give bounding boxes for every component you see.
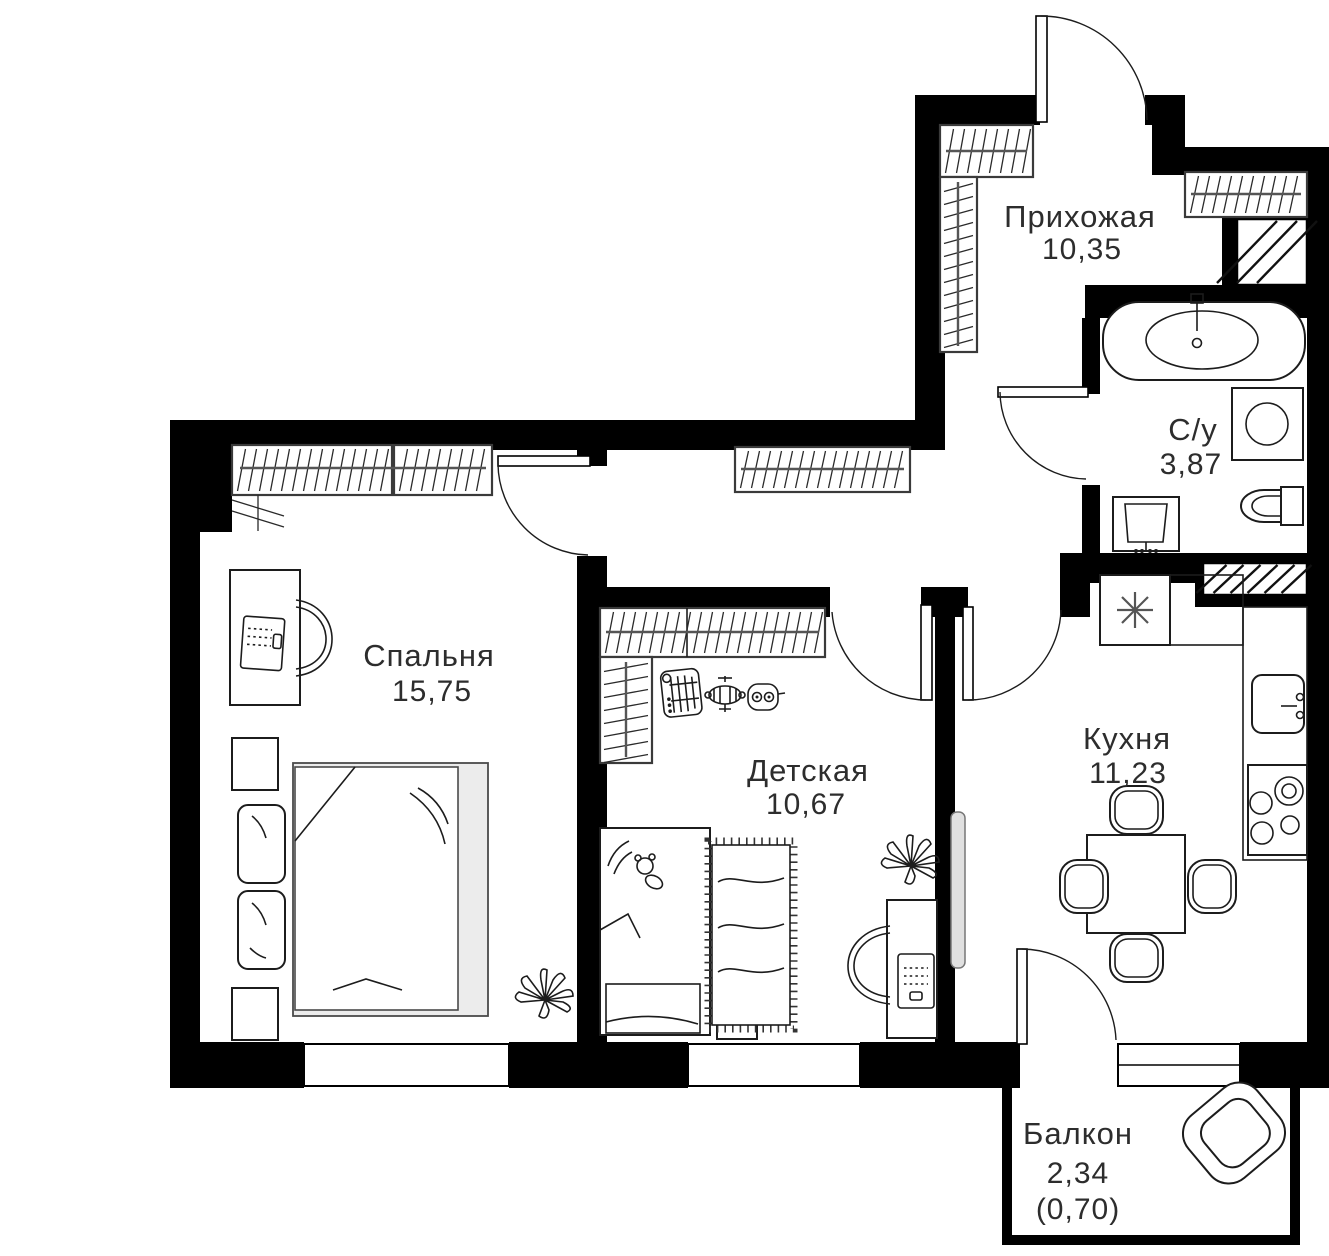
room-kids: Детская 10,67 — [600, 608, 939, 1039]
desk-icon — [887, 900, 937, 1038]
balcony-wall-right — [1290, 1088, 1300, 1245]
balcony-door — [1017, 949, 1116, 1044]
wall-top-right-wing — [1152, 147, 1310, 175]
wall-bottom-2 — [509, 1042, 688, 1088]
bedroom-area: 15,75 — [392, 675, 472, 708]
wall-bath-left-lower — [1082, 485, 1100, 555]
wall-top-entrance-left — [915, 95, 1040, 125]
kids-room-door — [832, 605, 932, 700]
balcony-label: Балкон — [1023, 1116, 1133, 1151]
wardrobe-corner-hatch — [232, 495, 284, 531]
room-kitchen: Кухня 11,23 — [951, 575, 1307, 982]
entrance-door — [1036, 16, 1147, 122]
hallway-label: Прихожая — [1004, 199, 1156, 234]
balcony-wall-bottom — [1002, 1235, 1300, 1245]
kids-bed-icon — [600, 828, 710, 1035]
stove-icon — [1248, 765, 1307, 855]
floor-plan-drawing: Балкон 2,34 (0,70) — [0, 0, 1329, 1256]
bedroom-door — [498, 456, 590, 555]
radiator-icon — [951, 812, 965, 968]
kids-room-area: 10,67 — [766, 788, 846, 821]
pillow-icon — [238, 805, 285, 969]
toy-piano-icon — [660, 668, 703, 718]
room-bathroom: С/у 3,87 — [1103, 294, 1305, 553]
rug-icon — [708, 841, 794, 1029]
kids-room-window — [688, 1044, 860, 1086]
plant-icon — [881, 835, 939, 884]
fridge-asterisk-icon — [1117, 592, 1153, 628]
kitchen-door — [963, 607, 1061, 700]
kitchen-label: Кухня — [1083, 721, 1171, 756]
kids-room-label: Детская — [747, 753, 869, 788]
plant-icon — [515, 969, 573, 1018]
floor-plan: Балкон 2,34 (0,70) — [0, 0, 1329, 1256]
double-bed-icon — [293, 763, 488, 1016]
wall-bottom-4 — [1240, 1042, 1329, 1088]
bedroom-window — [304, 1044, 509, 1086]
toy-airplane-icon — [705, 676, 745, 712]
balcony-area-coefficient: (0,70) — [1036, 1193, 1120, 1226]
sink-icon — [1113, 497, 1179, 553]
chair-icon — [296, 600, 332, 676]
bathroom-label: С/у — [1168, 412, 1218, 447]
washing-machine-icon — [1232, 388, 1303, 460]
toy-controller-icon — [748, 684, 785, 710]
kitchen-sink-icon — [1252, 675, 1304, 733]
bathroom-area: 3,87 — [1160, 448, 1222, 481]
balcony-wall-left — [1002, 1088, 1012, 1245]
armchair-icon — [1173, 1073, 1295, 1194]
wall-kitchen-door-stub — [1060, 553, 1090, 617]
room-bedroom: Спальня 15,75 — [230, 445, 573, 1040]
bathroom-door — [998, 387, 1088, 479]
kitchen-area: 11,23 — [1089, 757, 1167, 790]
nightstand-icon — [232, 738, 278, 790]
room-balcony: Балкон 2,34 (0,70) — [1002, 1073, 1300, 1245]
chair-icon — [848, 926, 890, 1004]
wall-bottom-3 — [860, 1042, 1020, 1088]
nightstand-icon — [232, 988, 278, 1040]
wall-bottom-1 — [170, 1042, 304, 1088]
balcony-area: 2,34 — [1047, 1157, 1109, 1190]
toilet-icon — [1241, 487, 1303, 525]
bedroom-label: Спальня — [363, 638, 495, 673]
wall-shaft2-bottom — [1195, 595, 1307, 607]
windows — [304, 1044, 1240, 1086]
wall-bath-left-upper — [1082, 318, 1100, 394]
hallway-area: 10,35 — [1042, 233, 1122, 266]
bathtub-icon — [1103, 294, 1305, 380]
wall-top-entrance-right — [1145, 95, 1185, 125]
wall-right — [1307, 147, 1329, 1088]
